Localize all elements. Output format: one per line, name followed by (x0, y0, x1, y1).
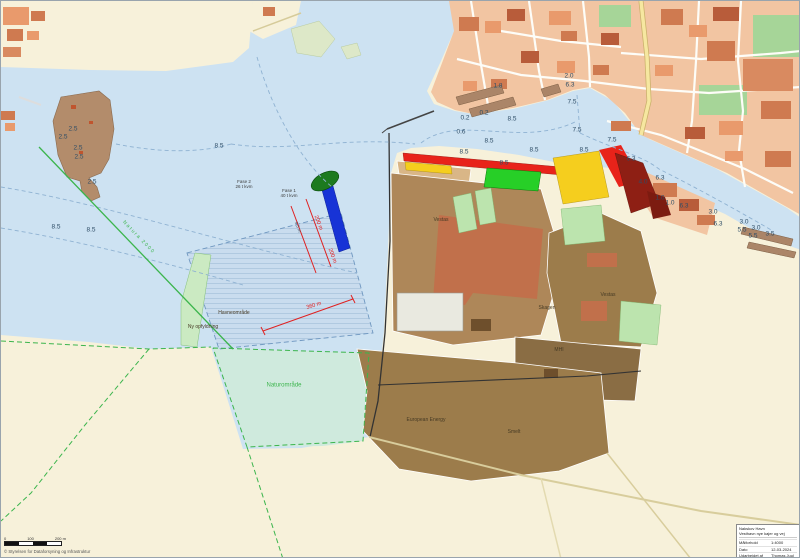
map-canvas (1, 1, 800, 558)
title-block-project: Vesthavn nye kajer og vej (739, 531, 797, 536)
map-viewport: 2.52.52.52.52.58.58.58.51.82.06.37.50.20… (0, 0, 800, 558)
copyright-text: © Styrelsen for Dataforsyning og Infrast… (4, 549, 90, 554)
scale-bar: 0 100 200 m (4, 536, 66, 546)
title-block-row: Udarbejdet af Thomas Juul (739, 552, 797, 558)
title-block-row: Målforhold 1:4000 (739, 539, 797, 545)
title-block-row: Dato 12-03-2024 (739, 546, 797, 552)
title-block: Nakskov Havn Vesthavn nye kajer og vej M… (736, 524, 800, 558)
